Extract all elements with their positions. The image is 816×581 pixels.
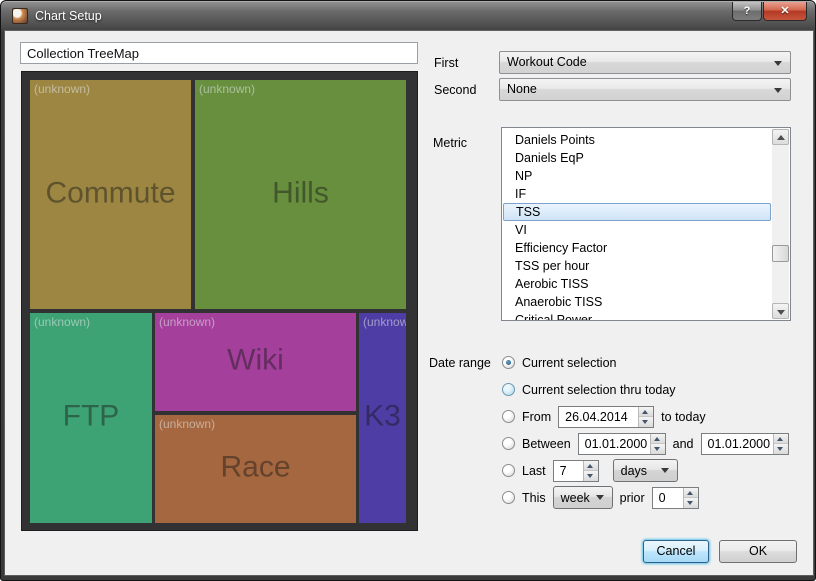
date-range-option-between[interactable]: Between 01.01.2000 and 01.01.2000 xyxy=(502,432,796,455)
radio-label: This xyxy=(522,491,546,505)
metric-item[interactable]: Daniels EqP xyxy=(503,149,772,167)
tile-name: Hills xyxy=(195,176,406,210)
tile-tag: (unknown) xyxy=(159,315,215,329)
prior-count-spinbox[interactable]: 0 xyxy=(652,487,699,509)
radio-label: From xyxy=(522,410,551,424)
chart-name-input[interactable] xyxy=(20,42,418,64)
metric-item[interactable]: IF xyxy=(503,185,772,203)
spin-up-icon[interactable] xyxy=(639,407,653,418)
from-date-spinbox[interactable]: 26.04.2014 xyxy=(558,406,654,428)
metric-item[interactable]: VI xyxy=(503,221,772,239)
spin-up-icon[interactable] xyxy=(651,434,665,445)
tile-name: Commute xyxy=(30,176,191,210)
spin-down-icon[interactable] xyxy=(651,444,665,454)
dialog-content: (unknown) Commute (unknown) Hills (unkno… xyxy=(5,31,813,575)
between-end-value: 01.01.2000 xyxy=(702,434,773,454)
chevron-down-icon xyxy=(661,468,669,473)
chart-setup-dialog: Chart Setup ? ✕ (unknown) Commute (unkno… xyxy=(0,0,816,581)
to-today-label: to today xyxy=(661,410,705,424)
first-combobox[interactable]: Workout Code xyxy=(499,51,791,74)
close-button[interactable]: ✕ xyxy=(763,2,807,21)
date-range-option-current[interactable]: Current selection xyxy=(502,351,617,374)
last-unit-combobox[interactable]: days xyxy=(613,459,678,482)
date-range-option-from[interactable]: From 26.04.2014 to today xyxy=(502,405,706,428)
ok-button[interactable]: OK xyxy=(719,540,797,563)
prior-count-value: 0 xyxy=(653,488,683,508)
tile-name: K3 xyxy=(359,400,406,434)
this-period-combobox[interactable]: week xyxy=(553,486,613,509)
tile-tag: (unknown) xyxy=(34,82,90,96)
radio-this[interactable] xyxy=(502,491,515,504)
treemap-tile-wiki: (unknown) Wiki xyxy=(155,313,356,411)
date-range-option-thru-today[interactable]: Current selection thru today xyxy=(502,378,676,401)
radio-current-selection[interactable] xyxy=(502,356,515,369)
window-title: Chart Setup xyxy=(35,9,102,23)
metric-label: Metric xyxy=(433,136,467,150)
metric-item[interactable]: Daniels Points xyxy=(503,131,772,149)
from-date-value: 26.04.2014 xyxy=(559,407,638,427)
radio-last[interactable] xyxy=(502,464,515,477)
spin-down-icon[interactable] xyxy=(774,444,788,454)
metric-item[interactable]: Anaerobic TISS xyxy=(503,293,772,311)
spin-up-icon[interactable] xyxy=(684,488,698,499)
chevron-down-icon xyxy=(774,61,782,66)
metric-item[interactable]: TSS per hour xyxy=(503,257,772,275)
prior-label: prior xyxy=(620,491,645,505)
metric-item-selected[interactable]: TSS xyxy=(503,203,771,221)
last-count-value: 7 xyxy=(554,461,583,481)
chevron-down-icon xyxy=(596,495,604,500)
treemap-tile-race: (unknown) Race xyxy=(155,415,356,523)
spin-down-icon[interactable] xyxy=(584,471,598,481)
tile-tag: (unknown) xyxy=(159,417,215,431)
treemap-tile-commute: (unknown) Commute xyxy=(30,80,191,309)
scroll-down-icon[interactable] xyxy=(772,303,789,319)
tile-tag: (unknown) xyxy=(199,82,255,96)
tile-name: Race xyxy=(155,451,356,485)
metric-item[interactable]: Aerobic TISS xyxy=(503,275,772,293)
tile-tag: (unknown) xyxy=(34,315,90,329)
treemap-preview: (unknown) Commute (unknown) Hills (unkno… xyxy=(21,71,418,531)
radio-between[interactable] xyxy=(502,437,515,450)
treemap-tile-k3: (unknown) K3 xyxy=(359,313,406,523)
tile-tag: (unknown) xyxy=(363,315,406,329)
metric-item[interactable]: Efficiency Factor xyxy=(503,239,772,257)
between-start-value: 01.01.2000 xyxy=(579,434,650,454)
radio-label: Current selection thru today xyxy=(522,383,676,397)
radio-label: Current selection xyxy=(522,356,617,370)
treemap-tile-hills: (unknown) Hills xyxy=(195,80,406,309)
tile-name: Wiki xyxy=(155,344,356,378)
spin-down-icon[interactable] xyxy=(639,417,653,427)
second-label: Second xyxy=(434,83,476,97)
between-start-date-spinbox[interactable]: 01.01.2000 xyxy=(578,433,666,455)
app-icon xyxy=(12,8,28,24)
spin-down-icon[interactable] xyxy=(684,498,698,508)
spin-up-icon[interactable] xyxy=(774,434,788,445)
second-combobox-value: None xyxy=(507,82,537,96)
between-end-date-spinbox[interactable]: 01.01.2000 xyxy=(701,433,789,455)
last-count-spinbox[interactable]: 7 xyxy=(553,460,599,482)
help-button[interactable]: ? xyxy=(732,2,762,21)
second-combobox[interactable]: None xyxy=(499,78,791,101)
this-period-value: week xyxy=(561,491,590,505)
tile-name: FTP xyxy=(30,400,152,434)
radio-thru-today[interactable] xyxy=(502,383,515,396)
first-label: First xyxy=(434,56,458,70)
scroll-up-icon[interactable] xyxy=(772,129,789,145)
radio-label: Between xyxy=(522,437,571,451)
metric-item[interactable]: NP xyxy=(503,167,772,185)
title-bar[interactable]: Chart Setup ? ✕ xyxy=(1,1,815,31)
date-range-option-last[interactable]: Last 7 days xyxy=(502,459,685,482)
metric-item[interactable]: Critical Power xyxy=(503,311,772,321)
radio-label: Last xyxy=(522,464,546,478)
date-range-label: Date range xyxy=(429,356,491,370)
treemap-tile-ftp: (unknown) FTP xyxy=(30,313,152,523)
cancel-button[interactable]: Cancel xyxy=(643,540,709,563)
and-label: and xyxy=(673,437,694,451)
scrollbar-thumb[interactable] xyxy=(772,245,789,262)
date-range-option-this[interactable]: This week prior 0 xyxy=(502,486,706,509)
metric-scrollbar[interactable] xyxy=(772,129,789,319)
spin-up-icon[interactable] xyxy=(584,461,598,472)
radio-from[interactable] xyxy=(502,410,515,423)
chevron-down-icon xyxy=(774,88,782,93)
first-combobox-value: Workout Code xyxy=(507,55,587,69)
metric-listbox: Daniels Points Daniels EqP NP IF TSS VI … xyxy=(501,127,791,321)
last-unit-value: days xyxy=(621,464,647,478)
